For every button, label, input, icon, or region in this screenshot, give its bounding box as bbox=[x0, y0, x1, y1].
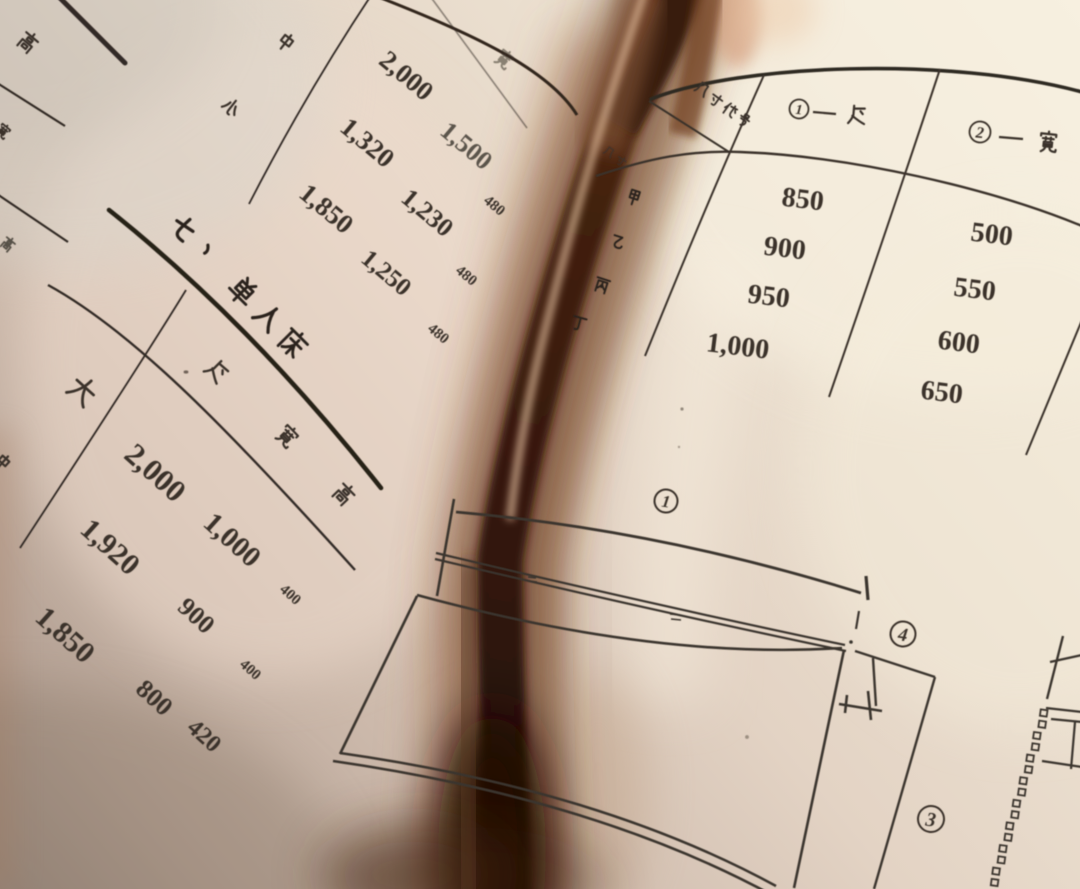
svg-text:550: 550 bbox=[952, 272, 997, 308]
svg-text:2: 2 bbox=[974, 124, 985, 142]
svg-text:500: 500 bbox=[969, 217, 1014, 253]
svg-text:600: 600 bbox=[936, 325, 981, 361]
svg-text:850: 850 bbox=[780, 182, 825, 218]
svg-text:950: 950 bbox=[746, 279, 791, 315]
svg-text:650: 650 bbox=[919, 375, 964, 411]
svg-text:900: 900 bbox=[762, 231, 807, 267]
svg-text:1: 1 bbox=[795, 103, 803, 119]
